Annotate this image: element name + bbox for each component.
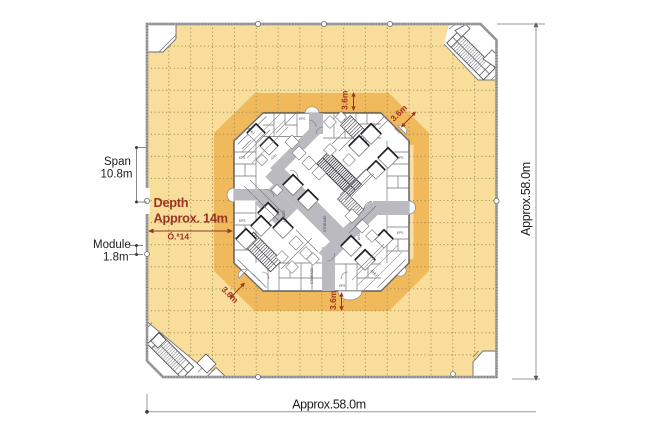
svg-text:Span: Span (104, 156, 131, 168)
svg-text:STORAGE: STORAGE (310, 267, 314, 284)
svg-text:3.6m: 3.6m (340, 90, 350, 110)
svg-text:Depth: Depth (154, 195, 189, 210)
svg-text:Module: Module (93, 239, 131, 251)
svg-text:3.6m: 3.6m (328, 290, 338, 310)
svg-text:EPS: EPS (339, 284, 345, 288)
svg-text:Approx.58.0m: Approx.58.0m (292, 398, 366, 412)
svg-text:EPS: EPS (239, 156, 245, 160)
svg-text:AHU: AHU (357, 233, 361, 240)
svg-text:1.8m: 1.8m (103, 252, 129, 264)
svg-text:Approx.58.0m: Approx.58.0m (519, 162, 533, 236)
svg-text:EPS: EPS (299, 117, 305, 121)
svg-text:Approx. 14m: Approx. 14m (154, 211, 228, 226)
svg-text:ELV: ELV (276, 208, 280, 215)
svg-text:EPS: EPS (397, 231, 403, 235)
svg-text:10.8m: 10.8m (101, 169, 133, 181)
svg-text:Ó.ª14: Ó.ª14 (168, 231, 190, 242)
svg-text:EPS: EPS (397, 156, 403, 160)
svg-text:EPS: EPS (239, 219, 245, 223)
svg-text:STORAGE: STORAGE (323, 215, 327, 232)
svg-text:LOBBY: LOBBY (282, 209, 286, 222)
